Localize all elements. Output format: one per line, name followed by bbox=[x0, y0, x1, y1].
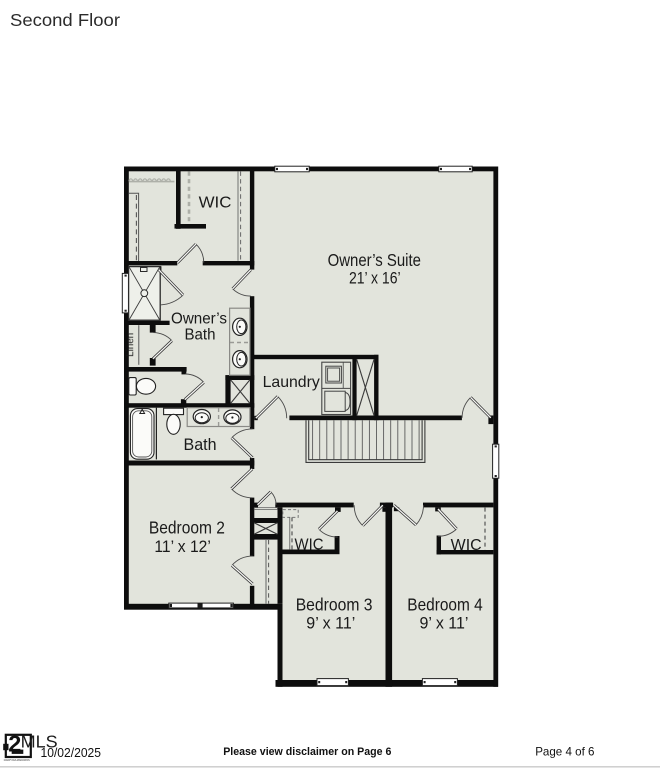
svg-text:9’ x 11’: 9’ x 11’ bbox=[306, 614, 355, 633]
svg-text:WIC: WIC bbox=[295, 536, 324, 553]
svg-text:Bath: Bath bbox=[185, 326, 216, 343]
svg-text:11’ x 12’: 11’ x 12’ bbox=[154, 537, 211, 556]
svg-text:Bedroom 3: Bedroom 3 bbox=[296, 594, 373, 614]
svg-text:Please view disclaimer on Page: Please view disclaimer on Page 6 bbox=[223, 746, 391, 758]
svg-text:Bath: Bath bbox=[184, 436, 217, 454]
svg-text:Bedroom 4: Bedroom 4 bbox=[407, 595, 483, 615]
svg-text:CANOPY MLS ASSOCIATION: CANOPY MLS ASSOCIATION bbox=[4, 758, 30, 762]
svg-text:21’ x 16’: 21’ x 16’ bbox=[349, 270, 401, 288]
svg-text:WIC: WIC bbox=[199, 195, 232, 212]
svg-text:Owner’s Suite: Owner’s Suite bbox=[328, 250, 421, 270]
svg-text:Laundry: Laundry bbox=[263, 374, 320, 391]
svg-text:Page 4 of 6: Page 4 of 6 bbox=[535, 745, 594, 758]
svg-text:9’ x 11’: 9’ x 11’ bbox=[420, 614, 469, 633]
svg-text:Bedroom 2: Bedroom 2 bbox=[149, 518, 225, 538]
svg-text:WIC: WIC bbox=[451, 537, 482, 554]
svg-text:Linen: Linen bbox=[124, 333, 136, 357]
svg-text:Second Floor: Second Floor bbox=[10, 10, 120, 30]
svg-text:Owner’s: Owner’s bbox=[171, 311, 227, 328]
svg-text:10/02/2025: 10/02/2025 bbox=[41, 745, 102, 760]
